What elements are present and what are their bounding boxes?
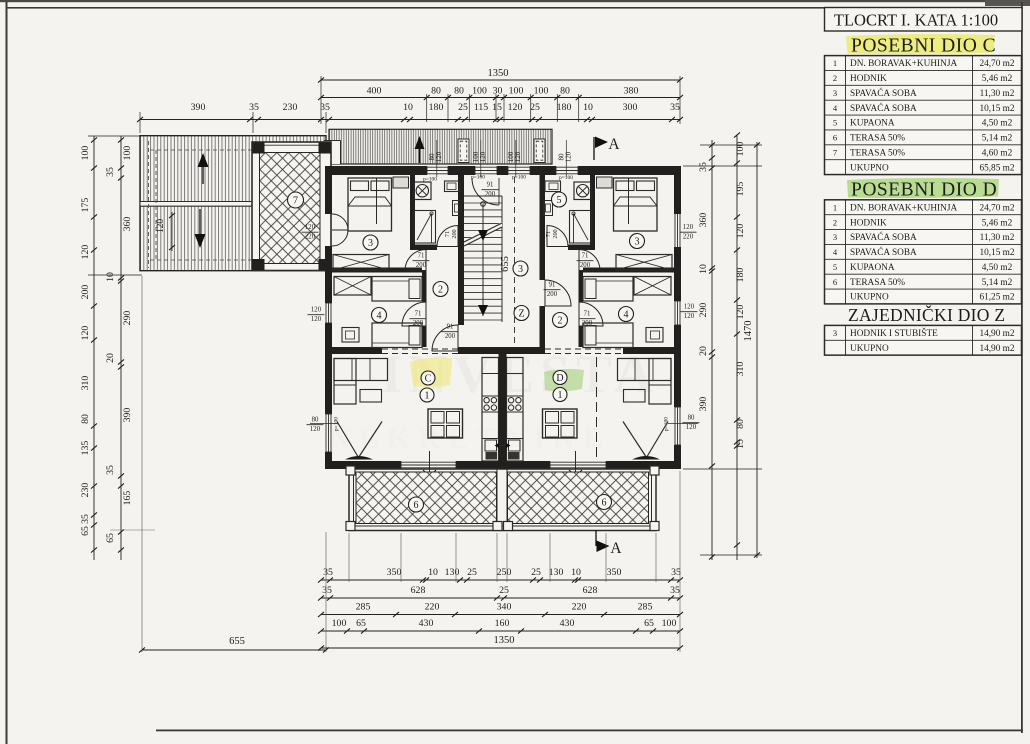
svg-text:120: 120 [565, 151, 573, 162]
svg-text:135: 135 [80, 441, 91, 456]
svg-text:120: 120 [311, 316, 322, 323]
svg-text:3: 3 [518, 264, 523, 275]
svg-text:POSEBNI DIO C: POSEBNI DIO C [851, 36, 996, 57]
svg-text:24,70 m2: 24,70 m2 [979, 59, 1014, 69]
svg-text:65: 65 [356, 618, 366, 629]
svg-text:80: 80 [688, 415, 695, 422]
svg-text:120: 120 [311, 307, 322, 314]
svg-text:KUPAONA: KUPAONA [850, 263, 895, 273]
svg-text:180: 180 [735, 268, 746, 283]
svg-text:91: 91 [549, 282, 556, 289]
svg-text:628: 628 [583, 585, 598, 596]
svg-text:D: D [556, 373, 563, 384]
svg-text:100: 100 [472, 86, 487, 97]
svg-text:285: 285 [356, 602, 371, 613]
svg-text:120: 120 [80, 326, 91, 341]
svg-text:25: 25 [531, 567, 541, 578]
svg-text:71: 71 [545, 231, 552, 237]
svg-text:10: 10 [698, 264, 709, 274]
svg-text:65: 65 [80, 526, 91, 536]
svg-text:65: 65 [105, 533, 116, 543]
svg-text:65,85 m2: 65,85 m2 [979, 163, 1014, 173]
svg-text:120: 120 [684, 304, 695, 311]
svg-text:35: 35 [698, 162, 709, 172]
svg-text:DN. BORAVAK+KUHINJA: DN. BORAVAK+KUHINJA [850, 203, 957, 213]
svg-text:7: 7 [833, 147, 837, 157]
svg-text:A: A [610, 540, 622, 557]
svg-text:6: 6 [833, 277, 837, 287]
svg-text:390: 390 [191, 102, 206, 113]
svg-text:24,70 m2: 24,70 m2 [979, 203, 1014, 213]
svg-text:10: 10 [583, 102, 593, 113]
svg-text:10: 10 [571, 567, 581, 578]
svg-text:1: 1 [425, 390, 430, 401]
svg-text:2: 2 [833, 217, 837, 227]
svg-text:TLOCRT I. KATA 1:100: TLOCRT I. KATA 1:100 [834, 11, 998, 30]
svg-text:80: 80 [312, 417, 319, 424]
svg-text:120: 120 [305, 224, 316, 231]
svg-text:4,50 m2: 4,50 m2 [982, 263, 1013, 273]
svg-text:DN. BORAVAK+KUHINJA: DN. BORAVAK+KUHINJA [850, 59, 957, 69]
svg-text:380: 380 [624, 86, 639, 97]
svg-text:14,90 m2: 14,90 m2 [979, 344, 1014, 354]
svg-text:35: 35 [80, 514, 91, 524]
svg-text:2: 2 [558, 315, 563, 326]
svg-text:230: 230 [283, 102, 298, 113]
svg-text:400: 400 [367, 86, 382, 97]
svg-text:195: 195 [735, 182, 746, 197]
svg-text:430: 430 [560, 618, 575, 629]
svg-text:1350: 1350 [488, 68, 509, 79]
svg-text:2: 2 [438, 284, 443, 295]
svg-text:2: 2 [833, 73, 837, 83]
svg-text:200: 200 [80, 285, 91, 300]
svg-text:35: 35 [322, 585, 332, 596]
svg-text:220: 220 [572, 602, 587, 613]
svg-text:15: 15 [492, 102, 502, 113]
svg-text:120: 120 [514, 151, 522, 162]
svg-text:3: 3 [833, 232, 837, 242]
svg-text:3: 3 [368, 238, 373, 249]
svg-text:200: 200 [552, 229, 559, 238]
svg-text:80: 80 [454, 86, 464, 97]
svg-text:TERASA 50%: TERASA 50% [850, 278, 905, 288]
svg-text:4,60 m2: 4,60 m2 [982, 148, 1013, 158]
svg-text:10,15 m2: 10,15 m2 [979, 248, 1014, 258]
svg-text:71: 71 [584, 311, 591, 318]
svg-text:290: 290 [122, 311, 133, 326]
svg-text:1: 1 [558, 390, 563, 401]
svg-text:35: 35 [320, 102, 330, 113]
svg-text:80: 80 [80, 414, 91, 424]
svg-text:3: 3 [833, 88, 837, 98]
svg-text:200: 200 [582, 320, 593, 327]
svg-text:120: 120 [156, 219, 166, 234]
svg-text:200: 200 [445, 333, 456, 340]
svg-text:10: 10 [428, 567, 438, 578]
svg-text:120: 120 [479, 151, 487, 162]
svg-text:655: 655 [500, 256, 511, 272]
svg-text:5,14 m2: 5,14 m2 [982, 134, 1013, 144]
svg-text:71: 71 [582, 253, 589, 260]
svg-text:61,25 m2: 61,25 m2 [979, 293, 1014, 303]
svg-text:350: 350 [607, 567, 622, 578]
svg-text:160: 160 [495, 618, 510, 629]
svg-text:10,15 m2: 10,15 m2 [979, 104, 1014, 114]
svg-text:230: 230 [80, 483, 91, 498]
svg-text:71: 71 [444, 231, 451, 237]
svg-text:5: 5 [833, 262, 837, 272]
svg-text:35: 35 [249, 102, 259, 113]
svg-text:340: 340 [497, 602, 512, 613]
svg-text:SPAVAĆA SOBA: SPAVAĆA SOBA [850, 231, 917, 243]
svg-text:A: A [608, 136, 620, 153]
svg-text:285: 285 [638, 602, 653, 613]
svg-text:1470: 1470 [743, 321, 754, 342]
svg-text:ZAJEDNIČKI DIO Z: ZAJEDNIČKI DIO Z [848, 305, 1005, 325]
svg-text:5: 5 [557, 195, 562, 206]
svg-text:250: 250 [497, 567, 512, 578]
svg-text:80: 80 [560, 86, 570, 97]
svg-text:100: 100 [662, 618, 677, 629]
svg-text:SPAVAĆA SOBA: SPAVAĆA SOBA [850, 246, 917, 258]
svg-text:1350: 1350 [494, 635, 515, 646]
svg-text:4: 4 [377, 310, 382, 321]
svg-text:35: 35 [105, 167, 116, 177]
svg-text:3: 3 [833, 328, 837, 338]
svg-text:360: 360 [698, 213, 709, 228]
svg-text:UKUPNO: UKUPNO [850, 344, 889, 354]
svg-text:200: 200 [547, 291, 558, 298]
svg-text:25: 25 [499, 585, 509, 596]
svg-text:71: 71 [415, 311, 422, 318]
svg-text:3: 3 [635, 236, 640, 247]
svg-text:KUPAONA: KUPAONA [850, 119, 895, 129]
svg-text:130: 130 [549, 567, 564, 578]
svg-text:360: 360 [122, 217, 133, 232]
svg-text:100: 100 [80, 146, 91, 161]
svg-text:C: C [425, 373, 432, 384]
svg-text:6: 6 [414, 500, 419, 511]
svg-text:300: 300 [623, 102, 638, 113]
svg-text:10: 10 [105, 272, 116, 282]
svg-text:120: 120 [735, 305, 746, 320]
svg-text:SPAVAĆA SOBA: SPAVAĆA SOBA [850, 102, 917, 114]
svg-text:TERASA 50%: TERASA 50% [850, 134, 905, 144]
svg-text:30: 30 [493, 86, 503, 97]
svg-text:UKUPNO: UKUPNO [850, 163, 889, 173]
svg-text:35: 35 [670, 585, 680, 596]
svg-text:25: 25 [467, 567, 477, 578]
svg-text:310: 310 [80, 376, 91, 391]
svg-text:100: 100 [735, 142, 746, 157]
svg-text:100: 100 [332, 618, 347, 629]
svg-text:Z: Z [518, 308, 524, 319]
svg-text:220: 220 [305, 234, 316, 241]
svg-text:1: 1 [833, 202, 837, 212]
svg-text:200: 200 [451, 229, 458, 238]
svg-text:120: 120 [735, 224, 746, 239]
svg-text:35: 35 [671, 567, 681, 578]
svg-text:5,46 m2: 5,46 m2 [982, 218, 1013, 228]
svg-text:165: 165 [122, 491, 133, 506]
svg-text:220: 220 [683, 234, 694, 241]
svg-text:120: 120 [508, 102, 523, 113]
svg-text:430: 430 [419, 618, 434, 629]
svg-text:100: 100 [509, 86, 524, 97]
svg-text:1: 1 [833, 58, 837, 68]
svg-text:HODNIK: HODNIK [850, 74, 887, 84]
svg-text:130: 130 [445, 567, 460, 578]
svg-text:35: 35 [323, 567, 333, 578]
svg-text:HODNIK I STUBIŠTE: HODNIK I STUBIŠTE [850, 327, 938, 339]
svg-text:655: 655 [229, 636, 245, 647]
svg-text:6: 6 [602, 497, 607, 508]
svg-text:120: 120 [684, 313, 695, 320]
svg-text:TERASA 50%: TERASA 50% [850, 148, 905, 158]
svg-text:25: 25 [530, 102, 540, 113]
svg-text:91: 91 [447, 324, 454, 331]
svg-text:628: 628 [411, 585, 426, 596]
svg-text:10: 10 [403, 102, 413, 113]
svg-text:POSEBNI DIO D: POSEBNI DIO D [851, 180, 997, 201]
svg-text:220: 220 [425, 602, 440, 613]
svg-text:p=100: p=100 [471, 175, 485, 181]
svg-text:15: 15 [735, 439, 746, 449]
svg-text:35: 35 [105, 465, 116, 475]
svg-text:120: 120 [80, 245, 91, 260]
svg-text:180: 180 [429, 102, 444, 113]
svg-text:115: 115 [474, 102, 488, 113]
svg-text:p=100: p=100 [512, 175, 526, 181]
svg-text:80: 80 [735, 419, 746, 429]
svg-text:5,46 m2: 5,46 m2 [982, 74, 1013, 84]
svg-text:390: 390 [122, 408, 133, 423]
svg-text:200: 200 [416, 262, 427, 269]
svg-text:80: 80 [431, 86, 441, 97]
svg-text:290: 290 [698, 303, 709, 318]
svg-text:390: 390 [698, 397, 709, 412]
svg-text:120: 120 [683, 224, 694, 231]
svg-text:65: 65 [644, 618, 654, 629]
svg-text:20: 20 [698, 346, 709, 356]
svg-text:200: 200 [580, 262, 591, 269]
svg-text:120: 120 [310, 426, 321, 433]
svg-text:100: 100 [122, 146, 133, 161]
svg-text:20: 20 [105, 353, 116, 363]
svg-text:175: 175 [80, 198, 91, 213]
svg-text:5: 5 [833, 118, 837, 128]
svg-text:4: 4 [624, 309, 629, 320]
svg-text:7: 7 [293, 195, 298, 206]
svg-text:200: 200 [485, 191, 496, 198]
svg-text:25: 25 [458, 102, 468, 113]
svg-text:120: 120 [435, 151, 443, 162]
svg-text:91: 91 [487, 182, 494, 189]
svg-text:180: 180 [557, 102, 572, 113]
svg-text:HODNIK: HODNIK [850, 218, 887, 228]
svg-text:71: 71 [418, 253, 425, 260]
svg-text:5,14 m2: 5,14 m2 [982, 278, 1013, 288]
svg-text:SPAVAĆA SOBA: SPAVAĆA SOBA [850, 87, 917, 99]
svg-text:14,90 m2: 14,90 m2 [979, 329, 1014, 339]
svg-text:35: 35 [670, 102, 680, 113]
svg-text:310: 310 [735, 362, 746, 377]
svg-text:p=100: p=100 [423, 177, 437, 183]
svg-text:6: 6 [833, 133, 837, 143]
svg-text:11,30 m2: 11,30 m2 [980, 89, 1015, 99]
svg-text:11,30 m2: 11,30 m2 [980, 233, 1015, 243]
svg-text:100: 100 [534, 86, 549, 97]
svg-text:UKUPNO: UKUPNO [850, 293, 889, 303]
svg-text:120: 120 [686, 424, 697, 431]
svg-text:350: 350 [387, 567, 402, 578]
svg-text:200: 200 [413, 320, 424, 327]
svg-text:4,50 m2: 4,50 m2 [982, 119, 1013, 129]
